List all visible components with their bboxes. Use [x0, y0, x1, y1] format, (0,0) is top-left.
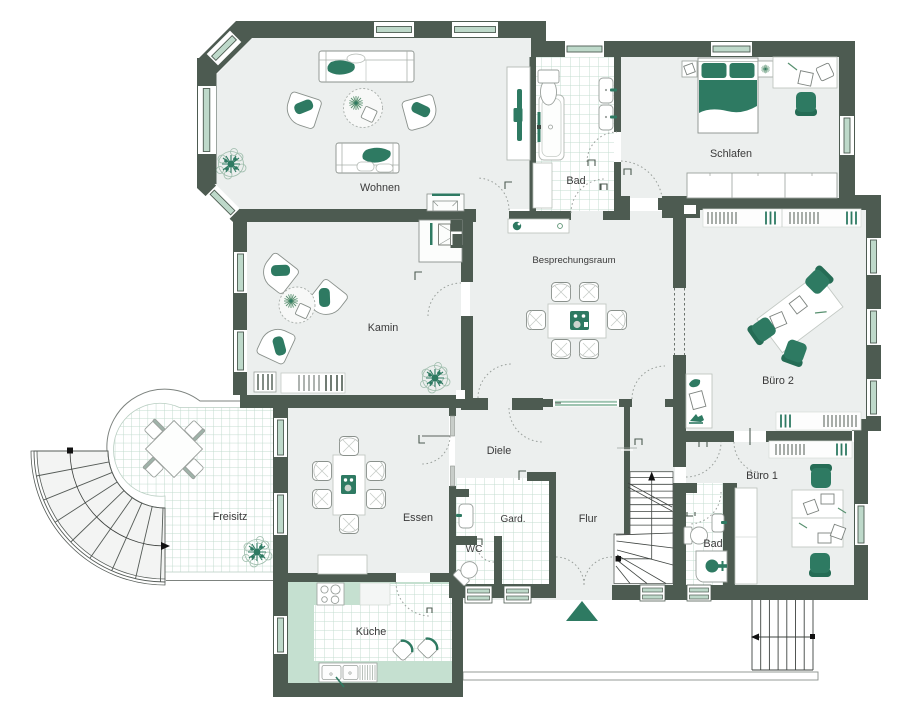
svg-text:Bad: Bad — [703, 538, 722, 550]
svg-text:Wohnen: Wohnen — [360, 182, 400, 194]
svg-text:Freisitz: Freisitz — [213, 511, 248, 523]
svg-text:Schlafen: Schlafen — [710, 148, 752, 160]
svg-text:Küche: Küche — [356, 626, 387, 638]
svg-text:Büro 2: Büro 2 — [762, 375, 794, 387]
svg-text:Kamin: Kamin — [368, 322, 399, 334]
svg-text:Bad: Bad — [566, 175, 585, 187]
svg-text:Diele: Diele — [487, 445, 512, 457]
svg-text:Essen: Essen — [403, 512, 433, 524]
svg-text:Gard.: Gard. — [500, 514, 525, 525]
svg-text:WC: WC — [466, 544, 483, 555]
svg-text:Flur: Flur — [579, 513, 598, 525]
svg-text:Büro 1: Büro 1 — [746, 470, 778, 482]
svg-text:Besprechungsraum: Besprechungsraum — [532, 255, 615, 266]
